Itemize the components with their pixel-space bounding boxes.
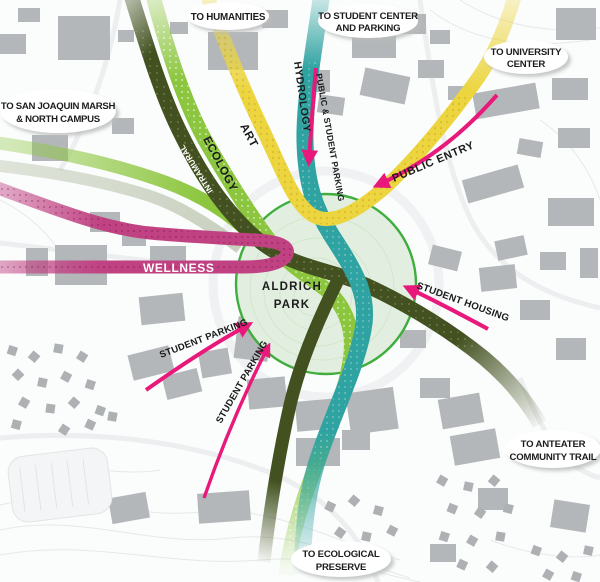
svg-text:AND PARKING: AND PARKING: [336, 23, 401, 34]
callout-ecological: TO ECOLOGICAL PRESERVE: [291, 541, 394, 580]
svg-text:TO HUMANITIES: TO HUMANITIES: [191, 12, 266, 23]
callout-university-center: TO UNIVERSITY CENTER: [484, 40, 571, 77]
svg-text:COMMUNITY TRAIL: COMMUNITY TRAIL: [510, 452, 597, 463]
campus-circulation-map: HYDROLOGY PUBLIC & STUDENT PARKING ART E…: [0, 0, 600, 582]
svg-text:PARK: PARK: [274, 299, 311, 311]
callout-student-center: TO STUDENT CENTER AND PARKING: [318, 4, 421, 41]
svg-text:TO ANTEATER: TO ANTEATER: [521, 439, 586, 450]
callout-humanities: TO HUMANITIES: [187, 2, 272, 33]
callout-anteater: TO ANTEATER COMMUNITY TRAIL: [505, 430, 600, 471]
svg-text:ALDRICH: ALDRICH: [262, 281, 322, 293]
parking-lot: [6, 446, 113, 524]
svg-text:TO SAN JOAQUIN MARSH: TO SAN JOAQUIN MARSH: [1, 101, 116, 112]
svg-text:PRESERVE: PRESERVE: [316, 562, 367, 573]
svg-text:TO ECOLOGICAL: TO ECOLOGICAL: [302, 549, 380, 560]
callout-san-joaquin: TO SAN JOAQUIN MARSH & NORTH CAMPUS: [0, 89, 119, 136]
label-wellness: WELLNESS: [143, 261, 214, 275]
map-canvas: HYDROLOGY PUBLIC & STUDENT PARKING ART E…: [0, 0, 600, 582]
svg-text:TO UNIVERSITY: TO UNIVERSITY: [491, 47, 563, 58]
svg-text:CENTER: CENTER: [507, 59, 546, 70]
svg-text:& NORTH CAMPUS: & NORTH CAMPUS: [16, 114, 101, 125]
svg-text:TO STUDENT CENTER: TO STUDENT CENTER: [318, 11, 418, 22]
label-public-student-parking: PUBLIC & STUDENT PARKING: [314, 73, 346, 203]
